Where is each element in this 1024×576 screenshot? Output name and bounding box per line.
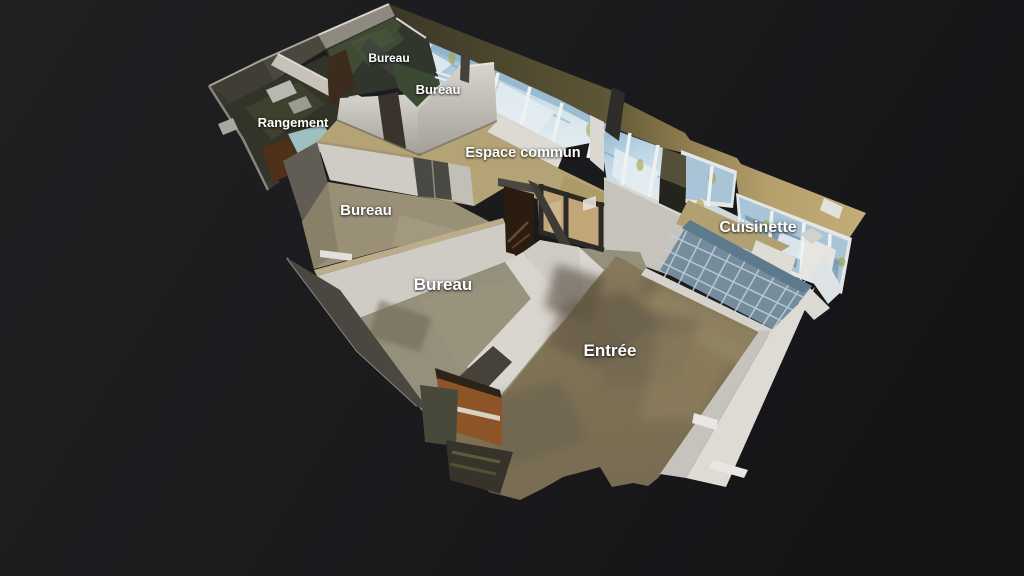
svg-text:Bureau: Bureau <box>414 275 473 294</box>
svg-text:Bureau: Bureau <box>340 202 392 219</box>
svg-text:Espace commun: Espace commun <box>465 145 580 161</box>
svg-text:Cuisinette: Cuisinette <box>719 219 796 236</box>
svg-text:Rangement: Rangement <box>258 115 329 130</box>
svg-text:Entrée: Entrée <box>584 341 637 360</box>
svg-text:Bureau: Bureau <box>416 82 461 97</box>
svg-text:Bureau: Bureau <box>368 51 409 65</box>
